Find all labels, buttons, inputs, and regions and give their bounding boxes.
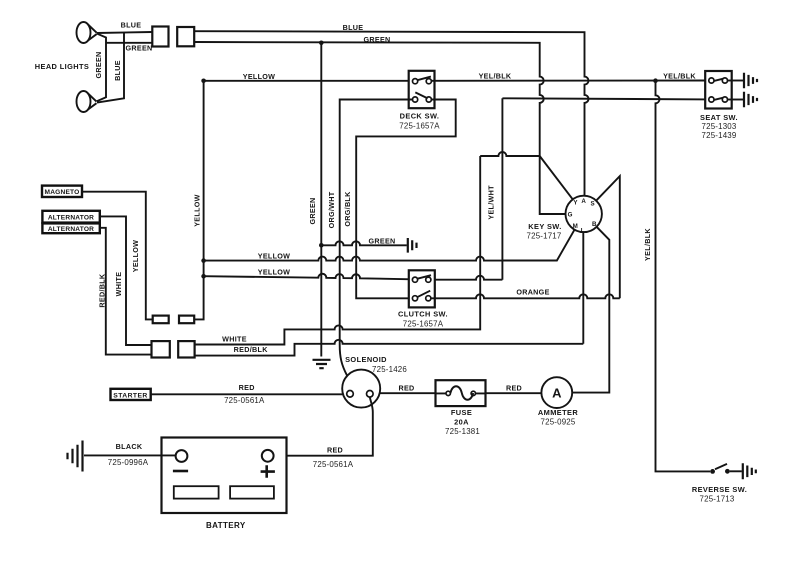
svg-text:ORANGE: ORANGE [516,288,549,297]
svg-text:GREEN: GREEN [368,237,395,246]
svg-text:YELLOW: YELLOW [131,240,140,273]
svg-text:A: A [552,385,562,400]
svg-text:725-1439: 725-1439 [702,131,737,140]
svg-text:YELLOW: YELLOW [258,252,291,261]
svg-text:RED: RED [239,383,255,392]
svg-text:FUSE: FUSE [451,408,472,417]
svg-text:725-0561A: 725-0561A [224,396,265,405]
svg-text:REVERSE SW.: REVERSE SW. [692,485,747,494]
svg-text:BLUE: BLUE [343,23,364,32]
svg-text:BATTERY: BATTERY [206,521,246,530]
svg-text:725-1426: 725-1426 [372,365,407,374]
svg-text:YELLOW: YELLOW [243,72,276,81]
svg-text:STARTER: STARTER [113,393,147,400]
svg-text:S: S [591,201,595,208]
svg-text:GREEN: GREEN [308,197,317,224]
svg-text:MAGNETO: MAGNETO [45,189,80,196]
svg-text:AMMETER: AMMETER [538,408,578,417]
svg-text:HEAD LIGHTS: HEAD LIGHTS [35,62,90,71]
svg-text:G: G [568,211,573,218]
svg-text:GREEN: GREEN [125,44,152,53]
svg-text:BLUE: BLUE [113,60,122,81]
svg-text:BLUE: BLUE [121,21,142,30]
svg-text:DECK SW.: DECK SW. [400,111,440,120]
svg-text:RED/BLK: RED/BLK [98,273,107,308]
svg-text:M: M [573,223,578,230]
svg-text:GREEN: GREEN [363,35,390,44]
svg-text:725-1303: 725-1303 [702,122,737,131]
svg-text:YELLOW: YELLOW [258,268,291,277]
svg-text:ALTERNATOR: ALTERNATOR [48,226,94,233]
svg-text:YEL/WHT: YEL/WHT [487,185,496,220]
svg-text:YEL/BLK: YEL/BLK [663,72,696,81]
svg-text:725-1717: 725-1717 [527,231,562,240]
svg-text:SEAT SW.: SEAT SW. [700,113,738,122]
svg-text:725-1713: 725-1713 [700,495,735,504]
svg-text:RED: RED [327,446,343,455]
svg-text:725-1657A: 725-1657A [403,319,444,328]
svg-text:CLUTCH SW.: CLUTCH SW. [398,309,448,318]
svg-text:ORG/BLK: ORG/BLK [343,191,352,227]
svg-text:725-0925: 725-0925 [541,418,576,427]
svg-text:WHITE: WHITE [114,272,123,297]
svg-text:RED: RED [398,384,414,393]
svg-text:RED/BLK: RED/BLK [234,345,269,354]
svg-text:725-0561A: 725-0561A [313,460,354,469]
svg-text:BLACK: BLACK [116,442,143,451]
svg-text:725-1381: 725-1381 [445,427,480,436]
svg-text:ORG/WHT: ORG/WHT [327,191,336,228]
svg-text:ALTERNATOR: ALTERNATOR [48,215,94,222]
svg-text:WHITE: WHITE [222,335,247,344]
svg-text:KEY SW.: KEY SW. [528,222,561,231]
svg-text:725-0996A: 725-0996A [108,458,149,467]
svg-text:SOLENOID: SOLENOID [345,355,387,364]
svg-text:YEL/BLK: YEL/BLK [643,228,652,261]
svg-text:YELLOW: YELLOW [193,194,202,227]
svg-text:GREEN: GREEN [94,51,103,78]
svg-text:20A: 20A [454,417,469,426]
svg-text:RED: RED [506,384,522,393]
svg-text:725-1657A: 725-1657A [399,121,440,130]
svg-text:YEL/BLK: YEL/BLK [479,72,512,81]
svg-text:A: A [581,198,586,205]
